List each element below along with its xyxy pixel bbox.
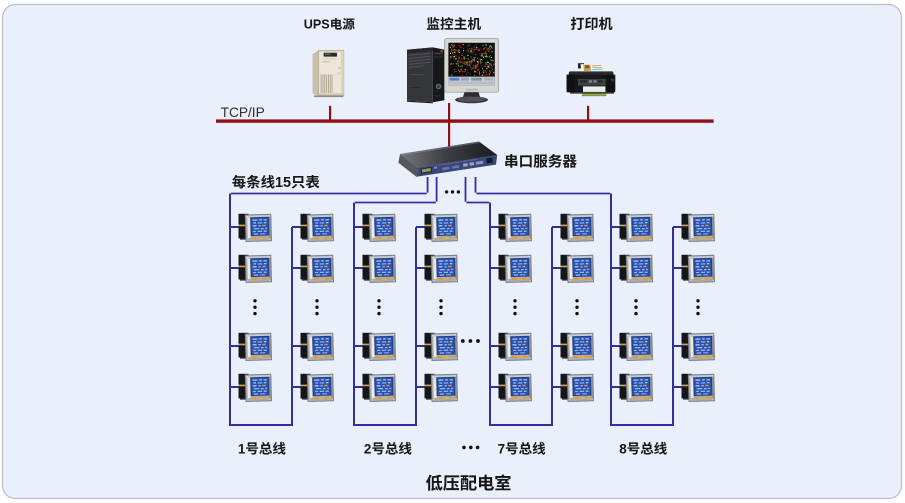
svg-text:UPS: UPS [304, 18, 330, 32]
svg-text:TCP/IP: TCP/IP [221, 105, 265, 120]
svg-text:7: 7 [498, 441, 506, 456]
svg-text:1: 1 [238, 441, 246, 456]
svg-text:15: 15 [275, 175, 291, 191]
svg-text:2: 2 [364, 441, 372, 456]
svg-text:8: 8 [619, 441, 627, 456]
